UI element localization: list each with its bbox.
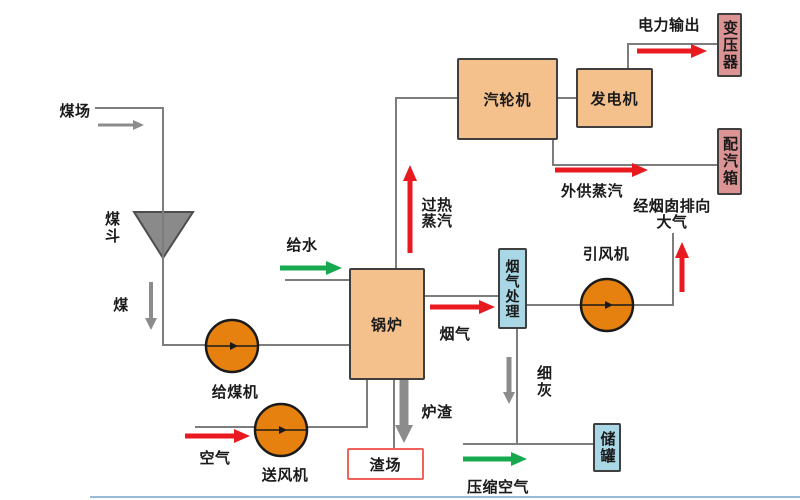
forced-draft-fan-label: 送风机 (262, 468, 309, 484)
slag-yard-label: 渣场 (369, 454, 401, 475)
coal-yard-to-boiler-line (95, 108, 349, 345)
transformer-box: 变压器 (717, 13, 742, 77)
feed-water-label: 给水 (286, 238, 317, 254)
induced-draft-fan-label: 引风机 (583, 247, 630, 263)
boiler-box: 锅炉 (349, 268, 425, 380)
boiler-to-turbine-line (396, 98, 457, 268)
superheated-steam-label: 过热 蒸汽 (421, 198, 452, 230)
to-chimney-label: 经烟囱排向 大气 (633, 199, 711, 231)
forced-draft-fan-circle (255, 404, 307, 456)
turbine-to-steam-box-line (553, 140, 717, 165)
steam-distribution-label: 配汽箱 (719, 136, 740, 187)
boiler-label: 锅炉 (371, 314, 403, 335)
storage-tank-box: 储罐 (593, 423, 621, 472)
external-steam-label: 外供蒸汽 (561, 184, 623, 200)
flue-gas-treatment-box: 烟气处理 (498, 248, 527, 329)
power-plant-flow-diagram: 汽轮机 发电机 锅炉 变压器 配汽箱 烟气处理 储罐 渣场 煤场 煤斗 煤 给煤… (0, 0, 800, 500)
transformer-label: 变压器 (719, 20, 740, 71)
flue-gas-treatment-label: 烟气处理 (503, 259, 523, 319)
slag-label: 炉渣 (421, 405, 452, 421)
power-output-label: 电力输出 (638, 18, 700, 34)
coal-feeder-circle (206, 320, 258, 372)
compressed-air-label: 压缩空气 (467, 480, 529, 496)
flue-gas-label: 烟气 (439, 327, 470, 343)
induced-draft-fan-circle (581, 279, 633, 331)
coal-hopper-label: 煤斗 (103, 211, 119, 245)
diagram-connectors-layer (0, 0, 800, 500)
air-label: 空气 (199, 451, 230, 467)
coal-label: 煤 (113, 298, 129, 314)
turbine-box: 汽轮机 (457, 58, 558, 140)
coal-feeder-label: 给煤机 (212, 385, 259, 401)
generator-label: 发电机 (590, 88, 638, 109)
turbine-label: 汽轮机 (483, 89, 531, 110)
steam-distribution-box: 配汽箱 (717, 128, 742, 195)
storage-tank-label: 储罐 (597, 431, 618, 465)
coal-yard-label: 煤场 (59, 104, 90, 120)
slag-yard-box: 渣场 (347, 448, 424, 480)
fine-ash-label: 细灰 (535, 365, 551, 399)
generator-box: 发电机 (576, 68, 653, 128)
generator-to-transformer-line (628, 44, 717, 68)
